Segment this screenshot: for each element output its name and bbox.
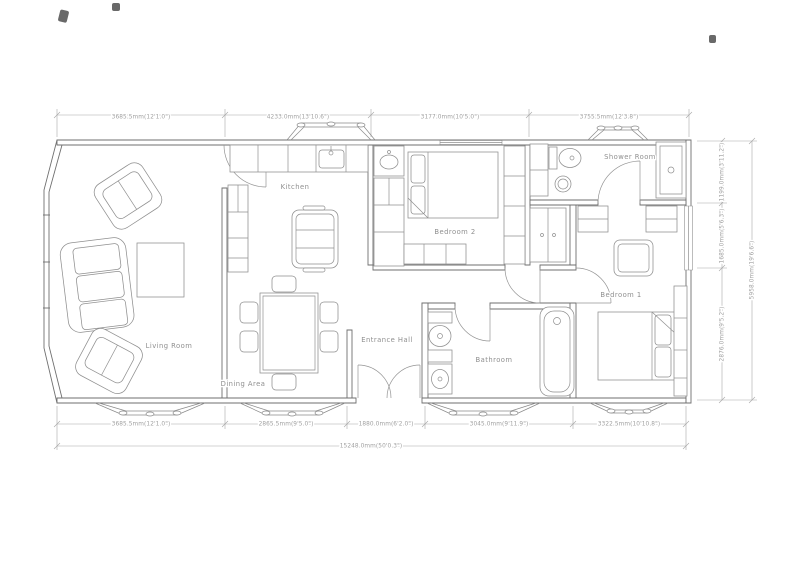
- wardrobe: [578, 206, 608, 232]
- room-label-dining-area: Dining Area: [221, 380, 266, 388]
- dim-bottom-2: 2865.5mm(9'5.0"): [259, 422, 314, 428]
- wardrobe: [374, 178, 404, 266]
- shower-tray: [656, 142, 686, 198]
- stray-marks: [58, 3, 716, 43]
- bathroom-fixtures: [428, 307, 574, 396]
- dimensions-right: 1199.0mm(3'11.2") 1685.0mm(5'6.3") 2876.…: [697, 138, 757, 403]
- kitchen-counter: [230, 145, 368, 172]
- living-room-furniture: [59, 159, 184, 397]
- dim-bottom-total: 15248.0mm(50'0.3"): [340, 444, 402, 450]
- wardrobe: [646, 206, 677, 232]
- dining-chair: [272, 276, 296, 292]
- floor-plan-drawing: 3685.5mm(12'1.0") 4233.0mm(13'10.6") 317…: [0, 0, 800, 565]
- dim-top-4: 3755.5mm(12'3.8"): [580, 115, 639, 121]
- vanity-unit: [428, 350, 452, 362]
- dimensions-top: 3685.5mm(12'1.0") 4233.0mm(13'10.6") 317…: [54, 109, 692, 137]
- armchair: [90, 159, 165, 233]
- hall-closet: [530, 208, 566, 262]
- dining-chair: [240, 331, 258, 352]
- double-bed: [408, 152, 498, 218]
- bathtub: [540, 307, 574, 396]
- kitchen-island: [292, 206, 338, 272]
- dim-top-1: 3685.5mm(12'1.0"): [112, 115, 171, 121]
- basin: [555, 176, 571, 192]
- room-label-bathroom: Bathroom: [476, 356, 513, 364]
- cabinet: [530, 144, 548, 196]
- dim-right-3: 2876.0mm(9'5.2"): [720, 307, 726, 362]
- wardrobe: [504, 146, 525, 264]
- toilet: [429, 326, 451, 347]
- bathroom-door: [455, 306, 490, 341]
- floor-plan-canvas: 3685.5mm(12'1.0") 4233.0mm(13'10.6") 317…: [0, 0, 800, 565]
- tall-cabinet: [228, 185, 248, 272]
- dining-chair: [240, 302, 258, 323]
- dining-furniture: [240, 276, 338, 390]
- bedroom-2-door: [505, 268, 540, 303]
- wardrobe: [674, 286, 687, 396]
- coffee-table: [137, 243, 184, 297]
- bedroom-1-furniture: [578, 206, 687, 396]
- toilet: [549, 147, 581, 169]
- room-label-entrance-hall: Entrance Hall: [361, 336, 413, 344]
- room-label-shower-room: Shower Room: [604, 153, 656, 161]
- dim-top-3: 3177.0mm(10'5.0"): [421, 115, 480, 121]
- shower-room-door: [598, 161, 640, 203]
- room-label-living-room: Living Room: [146, 342, 193, 350]
- armchair: [72, 325, 146, 397]
- shower-room-fixtures: [530, 142, 686, 198]
- dim-bottom-5: 3322.5mm(10'10.8"): [598, 422, 660, 428]
- entrance-double-doors: [358, 365, 420, 398]
- cabinet: [428, 312, 452, 323]
- dining-chair: [320, 331, 338, 352]
- dim-bottom-1: 3685.5mm(12'1.0"): [112, 422, 171, 428]
- dining-table: [260, 293, 318, 373]
- double-bed: [598, 312, 676, 380]
- dining-chair: [272, 374, 296, 390]
- room-label-bedroom-1: Bedroom 1: [600, 291, 641, 299]
- dim-bottom-4: 3045.0mm(9'11.9"): [470, 422, 529, 428]
- low-cabinet: [404, 244, 466, 264]
- dim-bottom-3: 1880.0mm(6'2.0"): [359, 422, 414, 428]
- room-label-kitchen: Kitchen: [281, 183, 310, 191]
- pedestal-basin: [428, 364, 452, 394]
- table: [614, 240, 653, 276]
- vanity-basin: [374, 146, 404, 176]
- dim-top-2: 4233.0mm(13'10.6"): [267, 115, 329, 121]
- dim-right-total: 5958.0mm(19'6.6"): [750, 241, 756, 300]
- dining-chair: [320, 302, 338, 323]
- room-label-bedroom-2: Bedroom 2: [434, 228, 475, 236]
- sofa: [59, 236, 135, 333]
- dim-right-1: 1199.0mm(3'11.2"): [720, 143, 726, 202]
- dim-right-2: 1685.0mm(5'6.3"): [720, 209, 726, 264]
- kitchen-fittings: [228, 145, 368, 272]
